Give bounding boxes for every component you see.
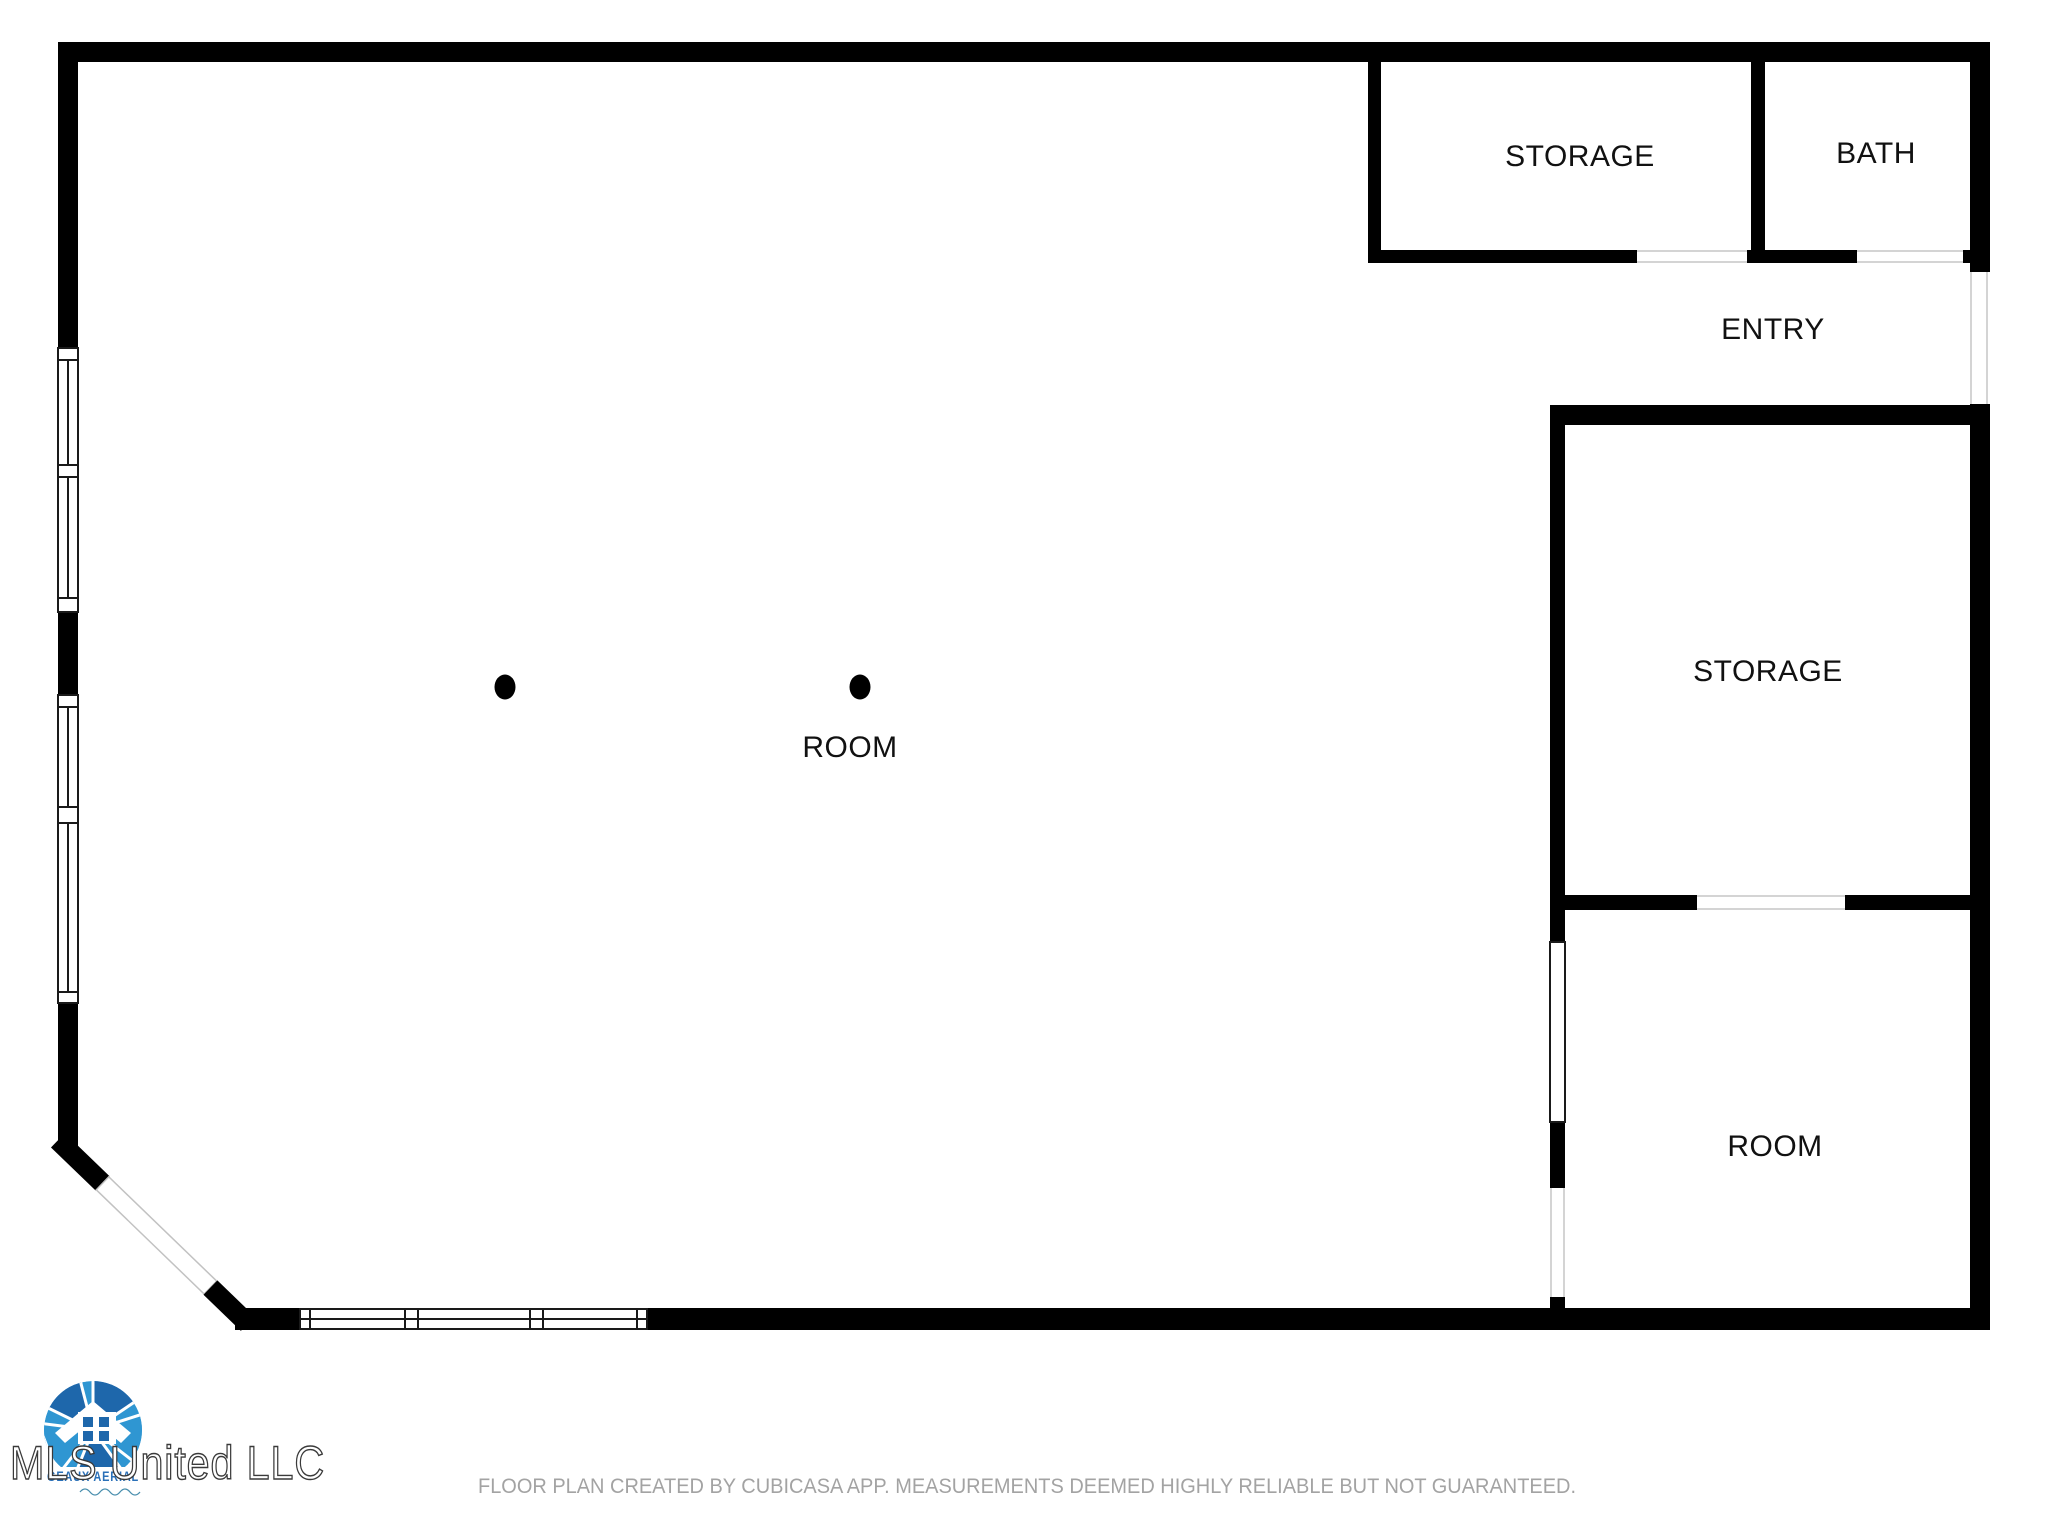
footer-disclaimer: FLOOR PLAN CREATED BY CUBICASA APP. MEAS… — [478, 1475, 1576, 1498]
window-lower-room — [1550, 942, 1565, 1122]
wall-right-lower — [1970, 404, 1990, 1330]
wall-section-bottom-c — [1963, 250, 1988, 263]
wall-storage-room-divider-a — [1552, 895, 1697, 910]
wall-storage-room-divider-b — [1845, 895, 1970, 910]
wall-left-seg1 — [58, 42, 78, 348]
wall-rstorage-left-a — [1550, 405, 1565, 942]
room-labels: STORAGE BATH ENTRY STORAGE ROOM ROOM — [802, 137, 1916, 1163]
column-dot-1 — [495, 675, 516, 700]
room-label-room-lower: ROOM — [1727, 1130, 1822, 1163]
logo-script-tagline — [80, 1489, 140, 1495]
logo-company-name: MLS United LLC — [10, 1436, 325, 1489]
room-label-storage-top: STORAGE — [1505, 140, 1655, 173]
structural-columns — [495, 675, 871, 700]
floor-plan-canvas: STORAGE BATH ENTRY STORAGE ROOM ROOM — [0, 0, 2048, 1536]
wall-rstorage-top — [1550, 405, 1990, 425]
wall-right-upper — [1970, 42, 1990, 272]
windows — [58, 348, 1565, 1329]
room-label-storage-right: STORAGE — [1693, 655, 1843, 688]
room-label-bath: BATH — [1836, 137, 1916, 170]
room-label-room-main: ROOM — [802, 731, 897, 764]
wall-rstorage-left-b — [1550, 1122, 1565, 1188]
wall-section-left — [1368, 62, 1381, 263]
wall-diagonal-wedge-top — [51, 1133, 109, 1190]
wall-storage-bath-divider — [1751, 62, 1765, 252]
wall-section-bottom-a — [1368, 250, 1637, 263]
room-label-entry: ENTRY — [1721, 313, 1825, 346]
wall-left-seg2 — [58, 612, 78, 695]
column-dot-2 — [850, 675, 871, 700]
wall-diagonal-wedge-bottom — [203, 1280, 254, 1331]
wall-rstorage-left-c — [1550, 1297, 1565, 1330]
mls-united-logo: GEAUX AERIAL MLS United LLC — [10, 1372, 325, 1495]
wall-top — [58, 42, 1988, 62]
wall-diagonal-corner — [51, 1133, 255, 1331]
window-diagonal — [96, 1177, 216, 1294]
wall-left-seg3 — [58, 1003, 78, 1150]
floor-plan-page: STORAGE BATH ENTRY STORAGE ROOM ROOM — [0, 0, 2048, 1536]
